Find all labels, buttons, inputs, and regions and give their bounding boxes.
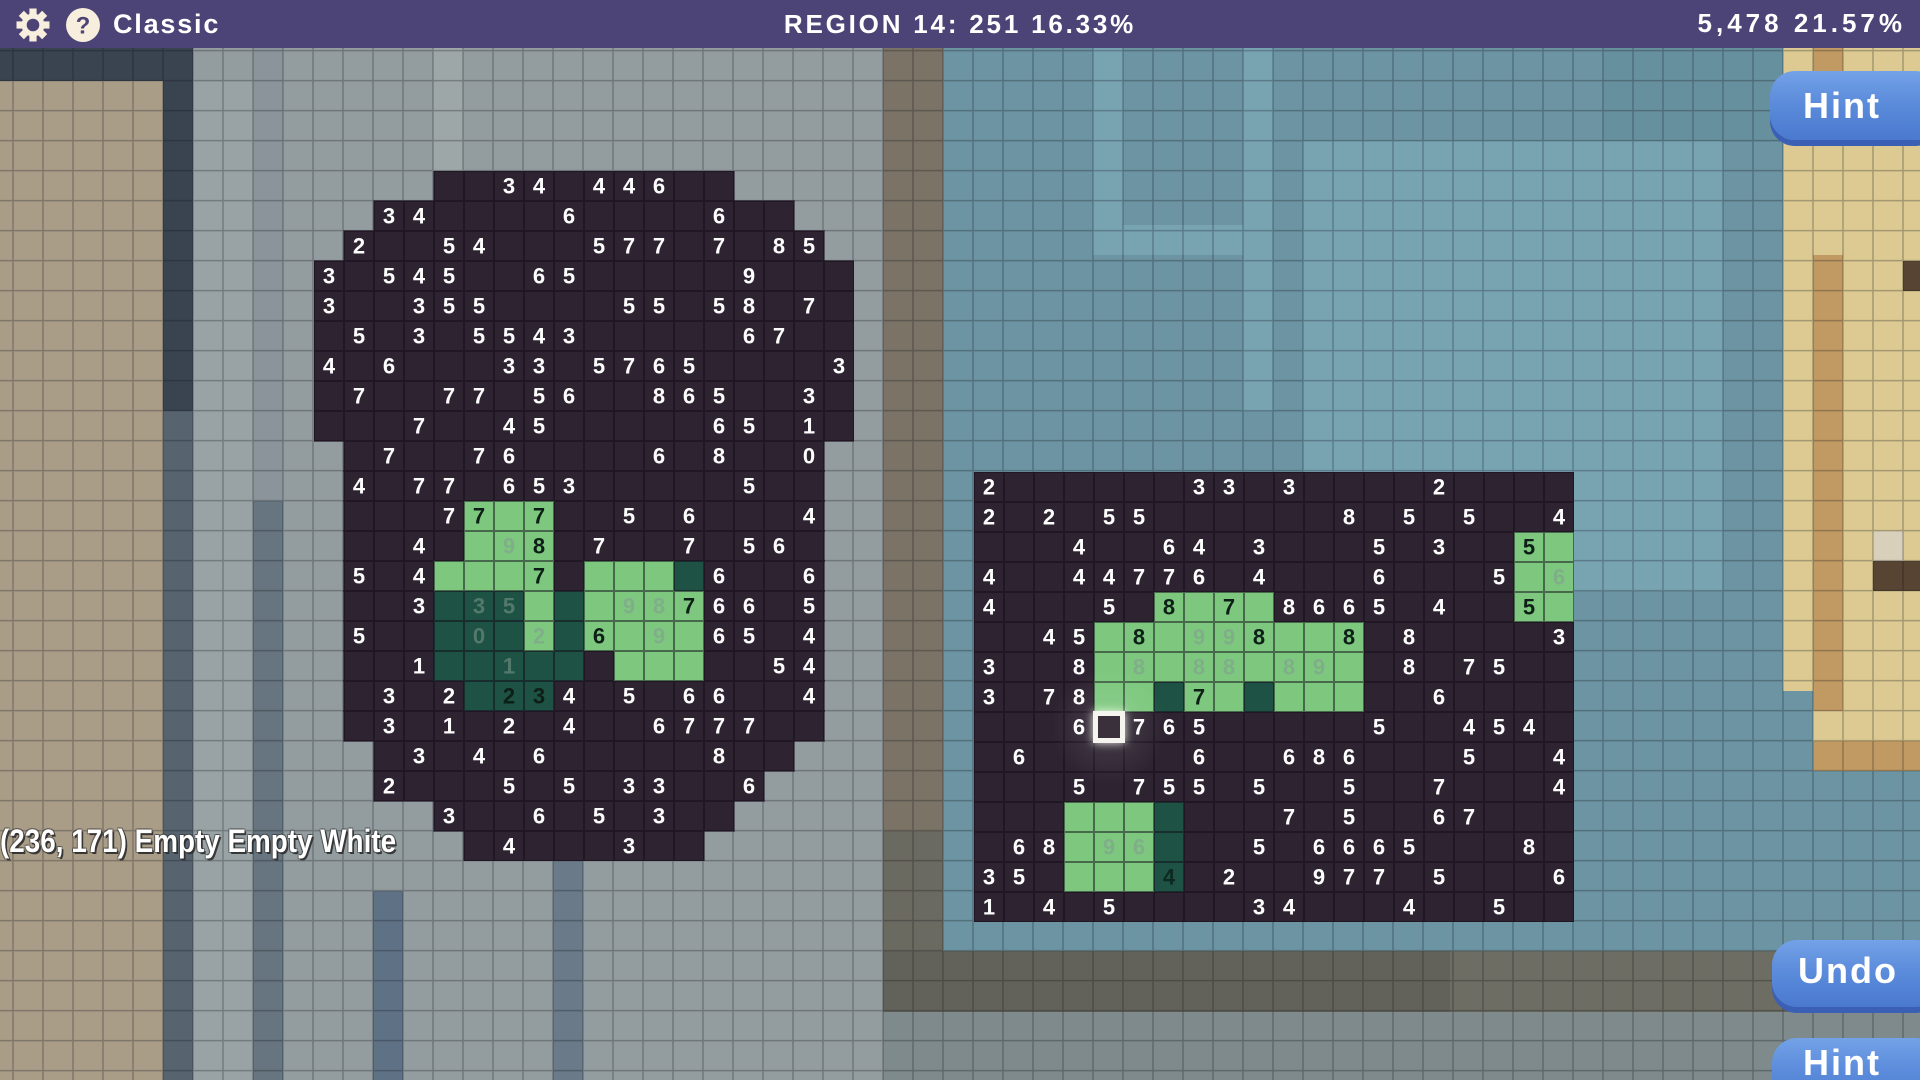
svg-text:5: 5 [563, 773, 575, 798]
svg-text:3: 3 [623, 773, 635, 798]
svg-text:4: 4 [983, 594, 996, 619]
svg-text:6: 6 [713, 413, 725, 438]
svg-text:9: 9 [1223, 624, 1235, 649]
svg-text:2: 2 [383, 773, 395, 798]
svg-text:5: 5 [623, 293, 635, 318]
svg-text:4: 4 [323, 353, 336, 378]
svg-text:8: 8 [533, 533, 545, 558]
svg-text:6: 6 [1343, 834, 1355, 859]
svg-text:6: 6 [1013, 834, 1025, 859]
svg-text:7: 7 [1463, 804, 1475, 829]
svg-text:3: 3 [1253, 894, 1265, 919]
svg-text:6: 6 [533, 803, 545, 828]
svg-text:4: 4 [1553, 774, 1566, 799]
svg-text:6: 6 [563, 383, 575, 408]
svg-text:5: 5 [803, 233, 815, 258]
svg-text:3: 3 [1553, 624, 1565, 649]
svg-text:9: 9 [1193, 624, 1205, 649]
svg-text:6: 6 [773, 533, 785, 558]
svg-text:5: 5 [1463, 744, 1475, 769]
svg-text:5: 5 [533, 413, 545, 438]
svg-text:8: 8 [1523, 834, 1535, 859]
svg-text:8: 8 [1193, 654, 1205, 679]
svg-text:1: 1 [803, 413, 815, 438]
svg-text:7: 7 [683, 593, 695, 618]
svg-text:5: 5 [563, 263, 575, 288]
svg-text:5: 5 [1463, 504, 1475, 529]
svg-text:5: 5 [1193, 774, 1205, 799]
svg-text:8: 8 [1343, 624, 1355, 649]
svg-text:9: 9 [1313, 654, 1325, 679]
svg-text:4: 4 [533, 173, 546, 198]
svg-text:1: 1 [413, 653, 425, 678]
svg-text:3: 3 [623, 833, 635, 858]
svg-text:5: 5 [1013, 864, 1025, 889]
svg-text:7: 7 [443, 503, 455, 528]
svg-text:1: 1 [503, 653, 515, 678]
svg-text:3: 3 [533, 353, 545, 378]
svg-text:7: 7 [443, 383, 455, 408]
svg-text:6: 6 [803, 563, 815, 588]
svg-text:4: 4 [1523, 714, 1536, 739]
svg-text:7: 7 [803, 293, 815, 318]
svg-text:8: 8 [1043, 834, 1055, 859]
svg-text:4: 4 [803, 653, 816, 678]
svg-text:5: 5 [1253, 834, 1265, 859]
svg-text:8: 8 [1283, 594, 1295, 619]
svg-text:4: 4 [353, 473, 366, 498]
svg-text:4: 4 [473, 743, 486, 768]
svg-text:4: 4 [563, 713, 576, 738]
svg-text:6: 6 [1433, 684, 1445, 709]
svg-text:7: 7 [623, 353, 635, 378]
svg-text:5: 5 [713, 383, 725, 408]
svg-text:6: 6 [1013, 744, 1025, 769]
svg-text:5: 5 [593, 803, 605, 828]
svg-text:5: 5 [503, 773, 515, 798]
svg-text:5: 5 [713, 293, 725, 318]
svg-text:5: 5 [1373, 594, 1385, 619]
svg-text:6: 6 [1313, 834, 1325, 859]
svg-text:3: 3 [323, 263, 335, 288]
svg-text:5: 5 [593, 233, 605, 258]
svg-text:6: 6 [593, 623, 605, 648]
svg-text:5: 5 [1103, 894, 1115, 919]
svg-text:2: 2 [1043, 504, 1055, 529]
svg-text:4: 4 [1043, 624, 1056, 649]
svg-text:7: 7 [473, 503, 485, 528]
svg-text:4: 4 [803, 503, 816, 528]
svg-text:4: 4 [533, 323, 546, 348]
svg-text:9: 9 [1103, 834, 1115, 859]
svg-text:5: 5 [533, 383, 545, 408]
svg-text:5: 5 [473, 293, 485, 318]
svg-text:4: 4 [1073, 564, 1086, 589]
svg-text:7: 7 [1163, 564, 1175, 589]
svg-text:6: 6 [683, 383, 695, 408]
svg-text:5: 5 [773, 653, 785, 678]
svg-text:9: 9 [623, 593, 635, 618]
svg-text:3: 3 [1253, 534, 1265, 559]
svg-text:6: 6 [683, 683, 695, 708]
svg-text:7: 7 [1373, 864, 1385, 889]
svg-text:5: 5 [503, 323, 515, 348]
svg-text:6: 6 [1343, 744, 1355, 769]
svg-text:7: 7 [1463, 654, 1475, 679]
svg-text:6: 6 [1373, 834, 1385, 859]
svg-text:6: 6 [503, 473, 515, 498]
svg-text:4: 4 [803, 623, 816, 648]
svg-text:5: 5 [353, 623, 365, 648]
svg-text:8: 8 [1343, 504, 1355, 529]
svg-text:6: 6 [1133, 834, 1145, 859]
svg-text:4: 4 [413, 563, 426, 588]
svg-text:5: 5 [1493, 894, 1505, 919]
svg-text:6: 6 [1163, 534, 1175, 559]
svg-text:7: 7 [1433, 774, 1445, 799]
svg-text:6: 6 [503, 443, 515, 468]
svg-text:8: 8 [713, 743, 725, 768]
svg-text:6: 6 [713, 203, 725, 228]
svg-text:7: 7 [653, 233, 665, 258]
svg-text:4: 4 [473, 233, 486, 258]
svg-text:5: 5 [593, 353, 605, 378]
svg-text:5: 5 [1493, 564, 1505, 589]
svg-text:5: 5 [1103, 594, 1115, 619]
svg-text:2: 2 [503, 683, 515, 708]
svg-text:8: 8 [1223, 654, 1235, 679]
svg-text:8: 8 [1163, 594, 1175, 619]
svg-text:3: 3 [833, 353, 845, 378]
svg-text:6: 6 [1343, 594, 1355, 619]
svg-text:8: 8 [1313, 744, 1325, 769]
svg-text:7: 7 [683, 533, 695, 558]
svg-text:5: 5 [443, 293, 455, 318]
svg-text:0: 0 [473, 623, 485, 648]
svg-text:7: 7 [383, 443, 395, 468]
svg-text:5: 5 [623, 683, 635, 708]
svg-text:3: 3 [533, 683, 545, 708]
svg-text:4: 4 [1163, 864, 1176, 889]
svg-text:5: 5 [1343, 774, 1355, 799]
svg-text:7: 7 [1223, 594, 1235, 619]
svg-text:6: 6 [743, 323, 755, 348]
svg-text:3: 3 [983, 654, 995, 679]
svg-text:7: 7 [413, 473, 425, 498]
svg-text:8: 8 [653, 593, 665, 618]
svg-text:5: 5 [1433, 864, 1445, 889]
svg-text:5: 5 [1373, 534, 1385, 559]
svg-text:6: 6 [683, 503, 695, 528]
svg-text:5: 5 [533, 473, 545, 498]
svg-text:5: 5 [1253, 774, 1265, 799]
svg-text:8: 8 [653, 383, 665, 408]
svg-text:4: 4 [1103, 564, 1116, 589]
svg-text:5: 5 [1403, 834, 1415, 859]
svg-text:7: 7 [743, 713, 755, 738]
svg-text:7: 7 [1343, 864, 1355, 889]
svg-text:3: 3 [383, 683, 395, 708]
svg-text:5: 5 [1403, 504, 1415, 529]
svg-text:3: 3 [1283, 474, 1295, 499]
svg-text:5: 5 [1523, 534, 1535, 559]
svg-text:7: 7 [533, 503, 545, 528]
svg-text:6: 6 [713, 593, 725, 618]
svg-text:8: 8 [713, 443, 725, 468]
svg-text:4: 4 [983, 564, 996, 589]
svg-text:5: 5 [1073, 624, 1085, 649]
svg-text:8: 8 [773, 233, 785, 258]
svg-text:3: 3 [443, 803, 455, 828]
svg-text:0: 0 [803, 443, 815, 468]
svg-text:7: 7 [713, 713, 725, 738]
svg-text:6: 6 [1283, 744, 1295, 769]
svg-text:8: 8 [743, 293, 755, 318]
svg-text:2: 2 [1433, 474, 1445, 499]
svg-text:5: 5 [743, 413, 755, 438]
svg-text:6: 6 [1193, 564, 1205, 589]
svg-text:9: 9 [1313, 864, 1325, 889]
svg-text:3: 3 [473, 593, 485, 618]
svg-text:2: 2 [1223, 864, 1235, 889]
svg-text:5: 5 [353, 323, 365, 348]
svg-text:4: 4 [803, 683, 816, 708]
svg-text:2: 2 [443, 683, 455, 708]
svg-text:8: 8 [1253, 624, 1265, 649]
svg-text:6: 6 [1373, 564, 1385, 589]
svg-text:5: 5 [1373, 714, 1385, 739]
svg-text:7: 7 [473, 383, 485, 408]
svg-text:4: 4 [413, 203, 426, 228]
svg-text:4: 4 [623, 173, 636, 198]
svg-text:5: 5 [1493, 654, 1505, 679]
svg-text:3: 3 [413, 293, 425, 318]
svg-text:6: 6 [1553, 564, 1565, 589]
svg-text:3: 3 [803, 383, 815, 408]
svg-text:3: 3 [323, 293, 335, 318]
svg-text:7: 7 [713, 233, 725, 258]
svg-text:7: 7 [1283, 804, 1295, 829]
svg-text:5: 5 [623, 503, 635, 528]
svg-text:5: 5 [1103, 504, 1115, 529]
svg-text:7: 7 [773, 323, 785, 348]
svg-text:3: 3 [503, 173, 515, 198]
svg-text:1: 1 [443, 713, 455, 738]
svg-text:5: 5 [443, 233, 455, 258]
svg-text:2: 2 [353, 233, 365, 258]
svg-text:4: 4 [1553, 744, 1566, 769]
svg-text:8: 8 [1403, 624, 1415, 649]
svg-text:3: 3 [563, 323, 575, 348]
svg-text:6: 6 [653, 443, 665, 468]
svg-text:3: 3 [413, 323, 425, 348]
svg-text:4: 4 [563, 683, 576, 708]
svg-text:7: 7 [1193, 684, 1205, 709]
svg-text:3: 3 [383, 713, 395, 738]
svg-text:3: 3 [503, 353, 515, 378]
svg-text:5: 5 [383, 263, 395, 288]
svg-text:3: 3 [413, 743, 425, 768]
svg-text:3: 3 [983, 684, 995, 709]
svg-text:9: 9 [503, 533, 515, 558]
svg-text:6: 6 [1193, 744, 1205, 769]
svg-text:4: 4 [1253, 564, 1266, 589]
svg-text:5: 5 [1193, 714, 1205, 739]
svg-text:7: 7 [623, 233, 635, 258]
svg-text:8: 8 [1133, 624, 1145, 649]
svg-text:3: 3 [1433, 534, 1445, 559]
svg-text:3: 3 [653, 803, 665, 828]
svg-text:8: 8 [1403, 654, 1415, 679]
svg-text:6: 6 [383, 353, 395, 378]
svg-text:5: 5 [473, 323, 485, 348]
svg-text:2: 2 [533, 623, 545, 648]
svg-text:7: 7 [533, 563, 545, 588]
svg-text:7: 7 [1133, 564, 1145, 589]
svg-text:3: 3 [1193, 474, 1205, 499]
svg-text:3: 3 [653, 773, 665, 798]
svg-text:6: 6 [533, 743, 545, 768]
svg-text:8: 8 [1283, 654, 1295, 679]
svg-text:5: 5 [1343, 804, 1355, 829]
svg-text:6: 6 [743, 773, 755, 798]
svg-text:4: 4 [1553, 504, 1566, 529]
svg-text:5: 5 [743, 533, 755, 558]
svg-text:6: 6 [563, 203, 575, 228]
svg-text:6: 6 [1553, 864, 1565, 889]
svg-text:5: 5 [1523, 594, 1535, 619]
svg-text:6: 6 [713, 623, 725, 648]
svg-text:1: 1 [983, 894, 995, 919]
svg-text:2: 2 [503, 713, 515, 738]
svg-text:4: 4 [1403, 894, 1416, 919]
svg-text:4: 4 [1433, 594, 1446, 619]
svg-text:5: 5 [503, 593, 515, 618]
svg-text:6: 6 [713, 683, 725, 708]
svg-text:6: 6 [653, 713, 665, 738]
svg-text:7: 7 [413, 413, 425, 438]
svg-text:7: 7 [683, 713, 695, 738]
svg-text:5: 5 [653, 293, 665, 318]
svg-text:7: 7 [473, 443, 485, 468]
svg-text:3: 3 [413, 593, 425, 618]
svg-text:7: 7 [443, 473, 455, 498]
svg-text:6: 6 [1433, 804, 1445, 829]
svg-text:4: 4 [1073, 534, 1086, 559]
svg-text:6: 6 [1313, 594, 1325, 619]
svg-text:9: 9 [653, 623, 665, 648]
svg-text:6: 6 [653, 173, 665, 198]
svg-text:9: 9 [743, 263, 755, 288]
svg-text:3: 3 [563, 473, 575, 498]
svg-text:6: 6 [533, 263, 545, 288]
svg-text:4: 4 [413, 263, 426, 288]
svg-text:4: 4 [1463, 714, 1476, 739]
svg-text:5: 5 [803, 593, 815, 618]
svg-text:4: 4 [413, 533, 426, 558]
svg-text:6: 6 [743, 593, 755, 618]
svg-text:4: 4 [1043, 894, 1056, 919]
svg-text:3: 3 [983, 864, 995, 889]
svg-text:4: 4 [503, 413, 516, 438]
svg-text:3: 3 [383, 203, 395, 228]
svg-text:7: 7 [353, 383, 365, 408]
svg-text:5: 5 [1133, 504, 1145, 529]
svg-text:3: 3 [1223, 474, 1235, 499]
svg-text:4: 4 [1193, 534, 1206, 559]
svg-text:6: 6 [713, 563, 725, 588]
svg-text:5: 5 [1493, 714, 1505, 739]
svg-text:5: 5 [743, 623, 755, 648]
svg-text:2: 2 [983, 474, 995, 499]
svg-text:4: 4 [503, 833, 516, 858]
svg-text:5: 5 [443, 263, 455, 288]
svg-text:7: 7 [593, 533, 605, 558]
svg-text:2: 2 [983, 504, 995, 529]
svg-text:5: 5 [683, 353, 695, 378]
svg-text:4: 4 [1283, 894, 1296, 919]
svg-text:4: 4 [593, 173, 606, 198]
svg-text:6: 6 [653, 353, 665, 378]
svg-text:5: 5 [353, 563, 365, 588]
svg-text:5: 5 [743, 473, 755, 498]
